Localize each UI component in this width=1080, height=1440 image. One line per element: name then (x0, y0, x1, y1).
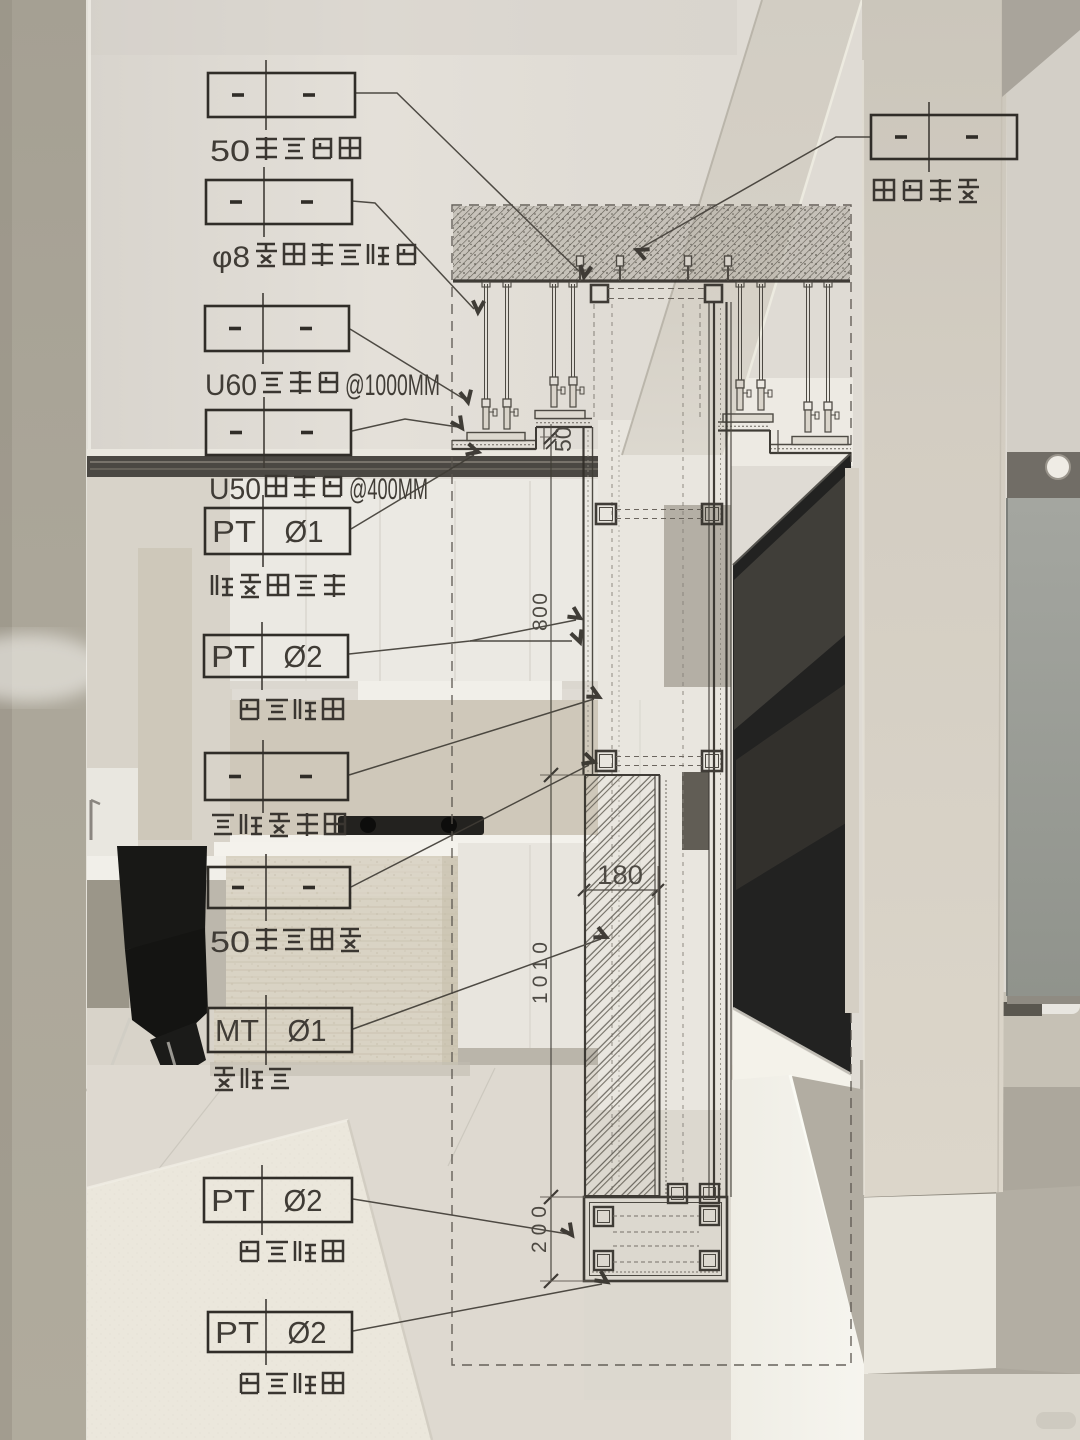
svg-text:50: 50 (550, 426, 576, 452)
svg-text:Ø2: Ø2 (284, 639, 323, 674)
svg-text:Ø2: Ø2 (288, 1315, 327, 1350)
svg-text:MT: MT (215, 1013, 259, 1048)
svg-text:PT: PT (211, 639, 255, 674)
svg-text:50: 50 (210, 926, 250, 959)
svg-text:φ8: φ8 (212, 241, 250, 274)
svg-text:PT: PT (212, 514, 256, 549)
svg-text:U60: U60 (205, 369, 257, 402)
svg-text:50: 50 (210, 135, 250, 168)
svg-text:U50: U50 (209, 473, 261, 506)
svg-text:Ø1: Ø1 (288, 1013, 327, 1048)
svg-text:@400MM: @400MM (349, 473, 428, 506)
svg-text:Ø1: Ø1 (285, 514, 324, 549)
svg-text:PT: PT (215, 1315, 259, 1350)
svg-text:180: 180 (597, 860, 643, 890)
svg-text:Ø2: Ø2 (284, 1183, 323, 1218)
svg-text:@1000MM: @1000MM (345, 369, 440, 402)
svg-text:PT: PT (211, 1183, 255, 1218)
